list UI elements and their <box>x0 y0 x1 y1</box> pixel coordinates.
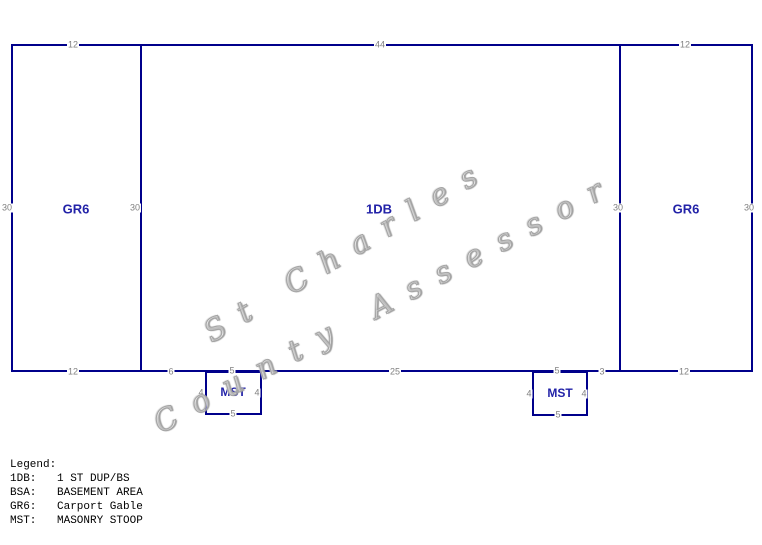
dim-top-left: 12 <box>67 41 79 50</box>
legend-title: Legend: <box>10 458 143 472</box>
dim-bottom-right: 12 <box>678 368 690 377</box>
section-label-gr6-right: GR6 <box>673 202 700 217</box>
section-label-gr6-left: GR6 <box>63 202 90 217</box>
dim-bottom-left: 12 <box>67 368 79 377</box>
dim-stoop-left-top: 5 <box>228 367 235 376</box>
legend-code-mst: MST: <box>10 514 57 528</box>
legend-item-mst: MST:MASONRY STOOP <box>10 514 143 528</box>
stoop-label-right: MST <box>547 386 572 400</box>
legend-item-1db: 1DB:1 ST DUP/BS <box>10 472 143 486</box>
stoop-label-left: MST <box>220 385 245 399</box>
legend-code-1db: 1DB: <box>10 472 57 486</box>
dim-stoop-left-east: 4 <box>253 389 260 398</box>
dim-stoop-left-bottom: 5 <box>229 410 236 419</box>
legend-desc-1db: 1 ST DUP/BS <box>57 473 130 485</box>
legend: Legend: 1DB:1 ST DUP/BS BSA:BASEMENT ARE… <box>10 458 143 528</box>
legend-desc-mst: MASONRY STOOP <box>57 515 143 527</box>
dim-right-inner: 30 <box>612 204 624 213</box>
dim-top-center: 44 <box>374 41 386 50</box>
legend-desc-gr6: Carport Gable <box>57 501 143 513</box>
dim-stoop-right-west: 4 <box>525 390 532 399</box>
dim-right-outer: 30 <box>743 204 755 213</box>
section-label-1db: 1DB <box>366 202 392 217</box>
parcel-sketch: GR6 1DB GR6 MST MST 12 44 12 30 30 30 30… <box>0 0 762 545</box>
dim-stoop-left-west: 4 <box>197 389 204 398</box>
dim-left-outer: 30 <box>1 204 13 213</box>
dim-stoop-right-top: 5 <box>553 367 560 376</box>
legend-item-bsa: BSA:BASEMENT AREA <box>10 486 143 500</box>
dim-left-inner: 30 <box>129 204 141 213</box>
dim-bottom-seg-left: 6 <box>167 368 174 377</box>
dim-stoop-right-east: 4 <box>580 390 587 399</box>
legend-code-bsa: BSA: <box>10 486 57 500</box>
dim-bottom-seg-right: 3 <box>598 368 605 377</box>
dim-bottom-seg-center: 25 <box>389 368 401 377</box>
dim-stoop-right-bottom: 5 <box>554 411 561 420</box>
legend-item-gr6: GR6:Carport Gable <box>10 500 143 514</box>
legend-code-gr6: GR6: <box>10 500 57 514</box>
dim-top-right: 12 <box>679 41 691 50</box>
legend-desc-bsa: BASEMENT AREA <box>57 487 143 499</box>
